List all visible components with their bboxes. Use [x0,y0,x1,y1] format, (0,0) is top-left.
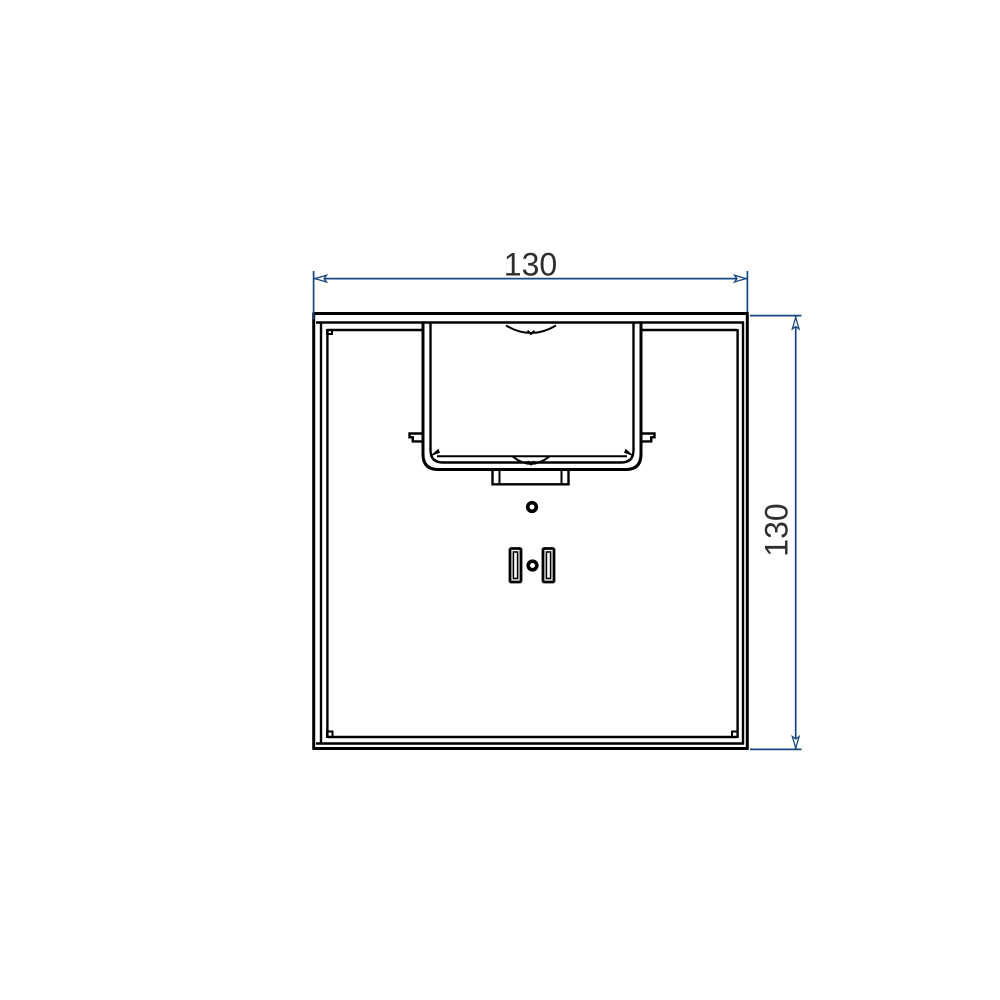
slot-right-outer [543,549,554,583]
part-outline [313,313,749,750]
finger-notch-arc [506,326,556,334]
corner-relief-bottom-left [327,732,333,738]
latch-tab-left [410,434,424,442]
right-dim-arrow-bottom-icon [792,737,799,749]
top-dim-arrow-left-icon [315,275,327,282]
right-dim-value: 130 [759,503,795,556]
slot-left [510,549,521,583]
top-dim-arrow-right-icon [735,275,747,282]
top-dimension: 130 [314,247,748,320]
slot-left-outer [510,549,521,583]
lower-hole [528,561,537,570]
pocket [410,322,655,484]
slot-right [543,549,554,583]
pocket-outer-contour [423,322,641,470]
holes-and-slots [510,503,554,582]
slot-right-inner [546,552,550,579]
top-dim-value: 130 [504,247,557,283]
drawing-canvas: 130 130 [0,0,1000,1000]
technical-drawing: 130 130 [0,0,1000,1000]
slot-left-inner [513,552,517,579]
upper-hole [528,503,537,512]
pocket-mid-contour [431,322,634,463]
corner-relief-top-left [327,330,332,334]
right-dim-arrow-top-icon [792,318,799,330]
right-dimension: 130 [750,316,802,750]
corner-relief-bottom-right [732,732,738,738]
latch-tab-right [641,434,655,442]
bottom-tab [493,470,569,485]
